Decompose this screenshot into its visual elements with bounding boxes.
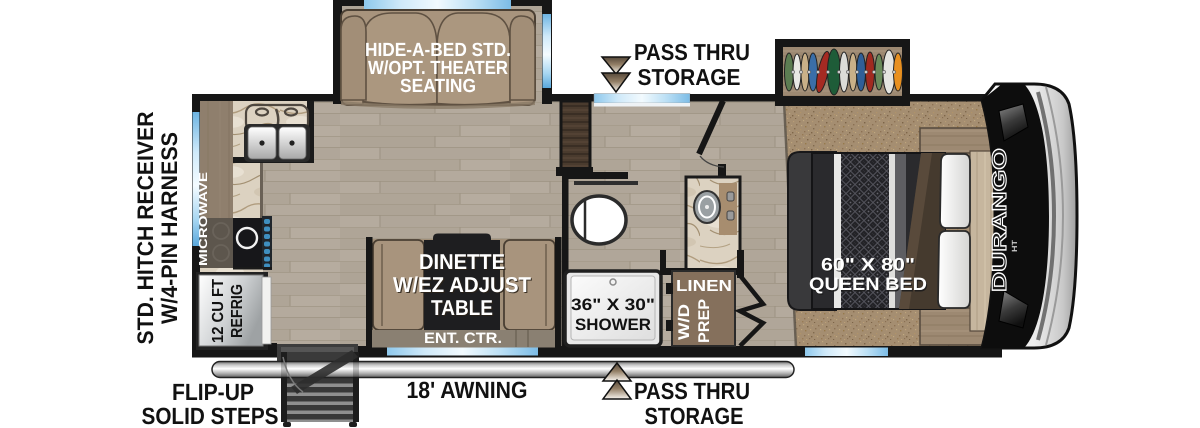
svg-text:PASS THRU: PASS THRU (634, 39, 750, 65)
svg-text:QUEEN BED: QUEEN BED (809, 274, 927, 294)
svg-text:STORAGE: STORAGE (638, 64, 741, 90)
svg-text:SOLID STEPS: SOLID STEPS (142, 403, 279, 428)
svg-text:W/D: W/D (676, 304, 693, 340)
svg-text:W/4-PIN HARNESS: W/4-PIN HARNESS (157, 132, 182, 324)
svg-text:HT: HT (1010, 240, 1019, 252)
svg-text:REFRIG: REFRIG (229, 284, 246, 338)
svg-text:W/EZ ADJUST: W/EZ ADJUST (393, 273, 531, 297)
svg-text:TABLE: TABLE (431, 296, 493, 320)
svg-text:SEATING: SEATING (400, 76, 476, 97)
svg-text:FLIP-UP: FLIP-UP (172, 379, 254, 405)
svg-text:MICROWAVE: MICROWAVE (198, 172, 210, 266)
svg-text:PREP: PREP (696, 299, 713, 343)
svg-text:SHOWER: SHOWER (575, 316, 651, 334)
svg-text:LINEN: LINEN (676, 278, 732, 295)
svg-text:STORAGE: STORAGE (645, 403, 744, 428)
svg-text:STD. HITCH RECEIVER: STD. HITCH RECEIVER (133, 112, 158, 345)
svg-text:PASS THRU: PASS THRU (634, 378, 750, 404)
svg-text:60" X 80": 60" X 80" (821, 255, 915, 275)
svg-text:DURANGO: DURANGO (989, 148, 1011, 292)
svg-text:12 CU FT: 12 CU FT (210, 279, 227, 343)
svg-text:18' AWNING: 18' AWNING (407, 377, 528, 403)
svg-text:ENT. CTR.: ENT. CTR. (424, 330, 502, 347)
svg-text:DINETTE: DINETTE (419, 250, 505, 274)
svg-text:36" X 30": 36" X 30" (571, 296, 655, 314)
